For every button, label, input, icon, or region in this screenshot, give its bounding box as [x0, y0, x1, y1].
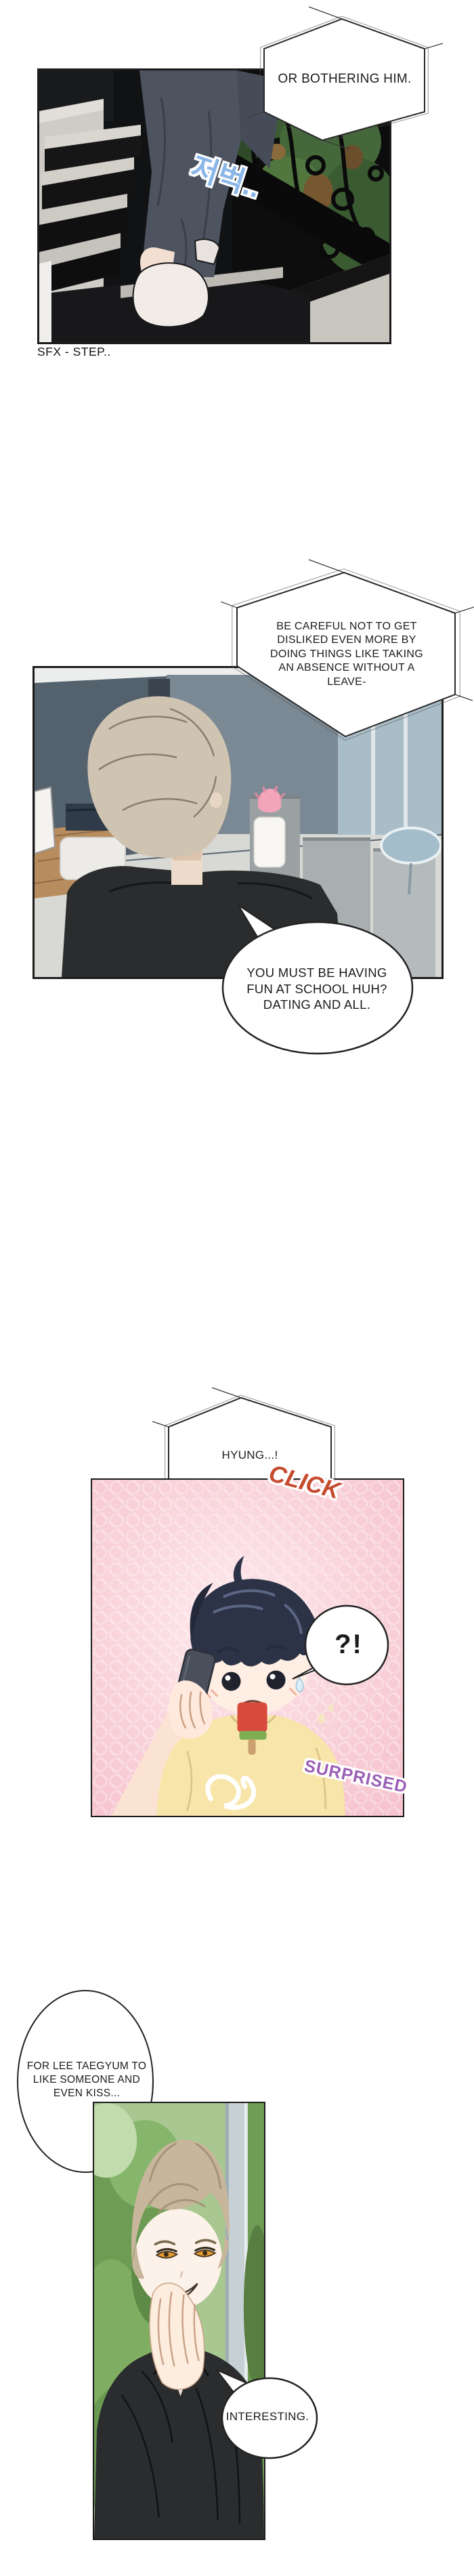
sfx-caption: SFX - STEP..	[37, 345, 111, 359]
webtoon-page: SFX - STEP.. 저벅.. OR BOTHERING HIM.	[0, 0, 474, 2576]
panel-smiling-man	[93, 2102, 265, 2540]
speech-bubble-shock: ?!	[290, 1603, 393, 1687]
speech-text: INTERESTING.	[214, 2366, 321, 2461]
speech-text: ?!	[305, 1603, 393, 1687]
speech-bubble-or-bothering: OR BOTHERING HIM.	[261, 15, 428, 144]
speech-text: YOU MUST BE HAVING FUN AT SCHOOL HUH? DA…	[217, 901, 417, 1058]
speech-text: BE CAREFUL NOT TO GET DISLIKED EVEN MORE…	[234, 569, 459, 740]
speech-bubble-be-careful: BE CAREFUL NOT TO GET DISLIKED EVEN MORE…	[234, 569, 459, 740]
speech-bubble-interesting: INTERESTING.	[214, 2366, 321, 2461]
smiling-man-art	[94, 2103, 264, 2539]
speech-bubble-school-fun: YOU MUST BE HAVING FUN AT SCHOOL HUH? DA…	[217, 901, 417, 1058]
speech-text: OR BOTHERING HIM.	[261, 15, 428, 144]
